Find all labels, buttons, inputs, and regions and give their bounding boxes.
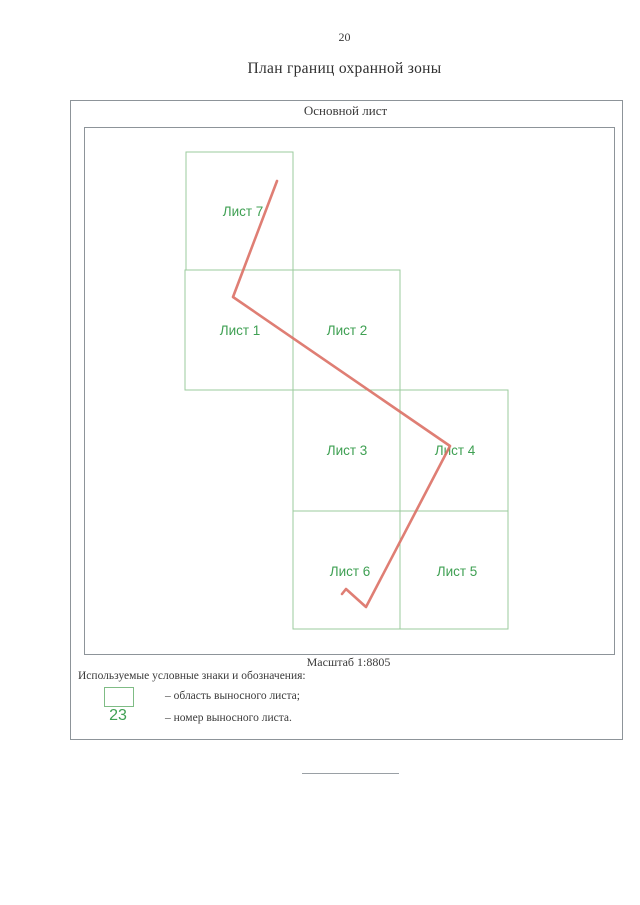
- legend-item-area: – область выносного листа;: [165, 690, 300, 702]
- footer-rule: [302, 773, 399, 774]
- document-page: 20 План границ охранной зоны Основной ли…: [0, 0, 640, 905]
- plan-diagram: Лист 7 Лист 1 Лист 2 Лист 3 Лист 4 Лист …: [0, 0, 640, 905]
- legend-number-symbol: 23: [98, 707, 138, 725]
- sheet-label-5: Лист 5: [437, 564, 478, 579]
- scale-label: Масштаб 1:8805: [84, 655, 613, 670]
- sheet-label-3: Лист 3: [327, 443, 368, 458]
- sheet-label-6: Лист 6: [330, 564, 371, 579]
- zone-boundary-polyline: [233, 181, 450, 607]
- legend-heading: Используемые условные знаки и обозначени…: [78, 670, 306, 682]
- legend-item-number: – номер выносного листа.: [165, 712, 292, 724]
- legend-area-symbol: [104, 687, 134, 707]
- sheet-label-7: Лист 7: [223, 204, 264, 219]
- sheet-label-2: Лист 2: [327, 323, 368, 338]
- sheet-label-1: Лист 1: [220, 323, 261, 338]
- sheet-label-4: Лист 4: [435, 443, 476, 458]
